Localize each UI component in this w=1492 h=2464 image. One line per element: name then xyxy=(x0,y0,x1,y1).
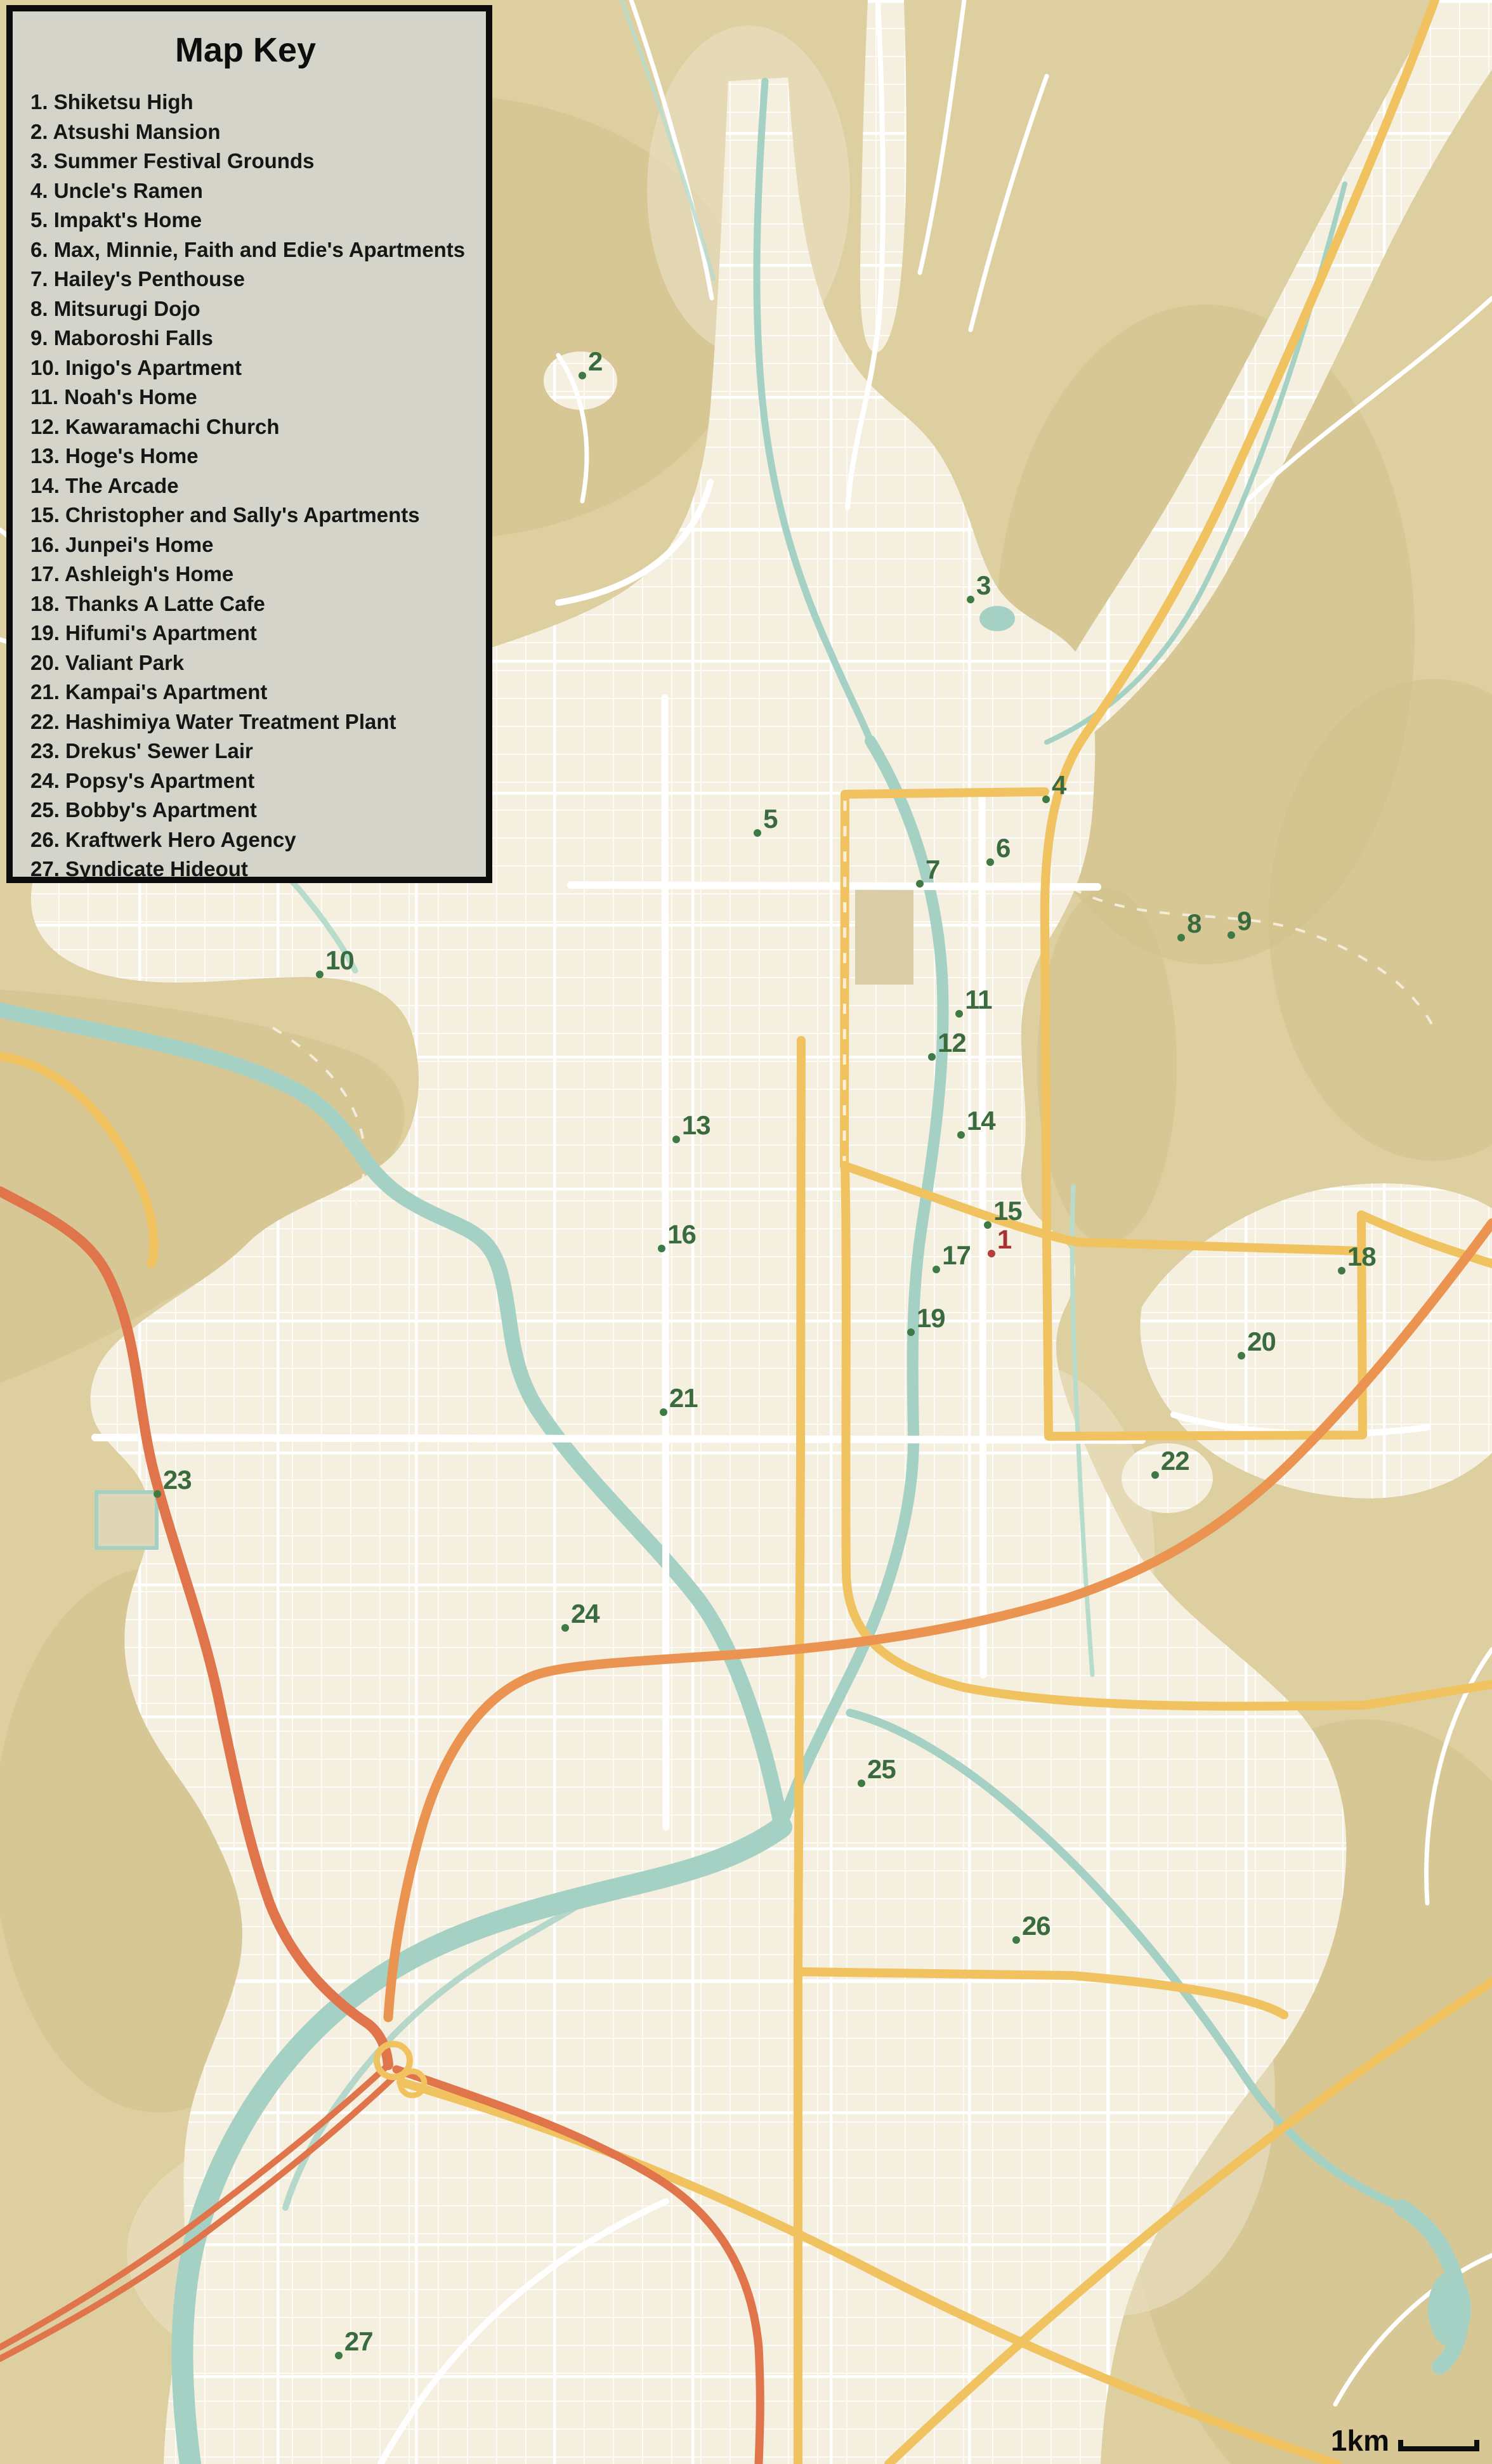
reservoir-lake xyxy=(1428,2272,1471,2346)
map-key-item: 3. Summer Festival Grounds xyxy=(30,147,480,176)
map-key-item: 14. The Arcade xyxy=(30,471,480,501)
palace-grounds xyxy=(855,889,913,985)
map-key-item: 10. Inigo's Apartment xyxy=(30,353,480,383)
map-key-item: 15. Christopher and Sally's Apartments xyxy=(30,501,480,530)
map-key-item: 18. Thanks A Latte Cafe xyxy=(30,589,480,619)
map-key-item: 6. Max, Minnie, Faith and Edie's Apartme… xyxy=(30,235,480,265)
map-key-item: 5. Impakt's Home xyxy=(30,206,480,235)
map-key-title: Map Key xyxy=(30,30,461,70)
map-key-item: 24. Popsy's Apartment xyxy=(30,766,480,796)
map-key-item: 8. Mitsurugi Dojo xyxy=(30,294,480,324)
pond xyxy=(979,606,1015,631)
map-key-item: 20. Valiant Park xyxy=(30,648,480,678)
map-key-item: 2. Atsushi Mansion xyxy=(30,117,480,147)
map-key-list: 1. Shiketsu High2. Atsushi Mansion3. Sum… xyxy=(30,88,480,884)
map-key-item: 26. Kraftwerk Hero Agency xyxy=(30,825,480,855)
scale-bar-rule xyxy=(1398,2446,1479,2451)
map-key-item: 12. Kawaramachi Church xyxy=(30,412,480,442)
map-key-item: 16. Junpei's Home xyxy=(30,530,480,560)
scale-bar: 1km xyxy=(1331,2430,1479,2453)
map-key-item: 22. Hashimiya Water Treatment Plant xyxy=(30,707,480,737)
map-key-item: 21. Kampai's Apartment xyxy=(30,678,480,707)
map-key: Map Key 1. Shiketsu High2. Atsushi Mansi… xyxy=(6,5,492,883)
map-key-item: 19. Hifumi's Apartment xyxy=(30,619,480,648)
map-key-item: 1. Shiketsu High xyxy=(30,88,480,117)
map-key-item: 7. Hailey's Penthouse xyxy=(30,265,480,294)
map-stage: 1234567891011121314151617181920212223242… xyxy=(0,0,1492,2464)
map-key-item: 9. Maboroshi Falls xyxy=(30,324,480,353)
walled-pond xyxy=(96,1492,157,1548)
map-key-item: 4. Uncle's Ramen xyxy=(30,176,480,206)
map-key-item: 23. Drekus' Sewer Lair xyxy=(30,737,480,766)
map-key-item: 13. Hoge's Home xyxy=(30,442,480,471)
map-key-item: 11. Noah's Home xyxy=(30,383,480,412)
map-key-item: 17. Ashleigh's Home xyxy=(30,560,480,589)
map-key-item: 27. Syndicate Hideout xyxy=(30,855,480,884)
map-key-item: 25. Bobby's Apartment xyxy=(30,796,480,825)
scale-bar-label: 1km xyxy=(1331,2430,1389,2453)
